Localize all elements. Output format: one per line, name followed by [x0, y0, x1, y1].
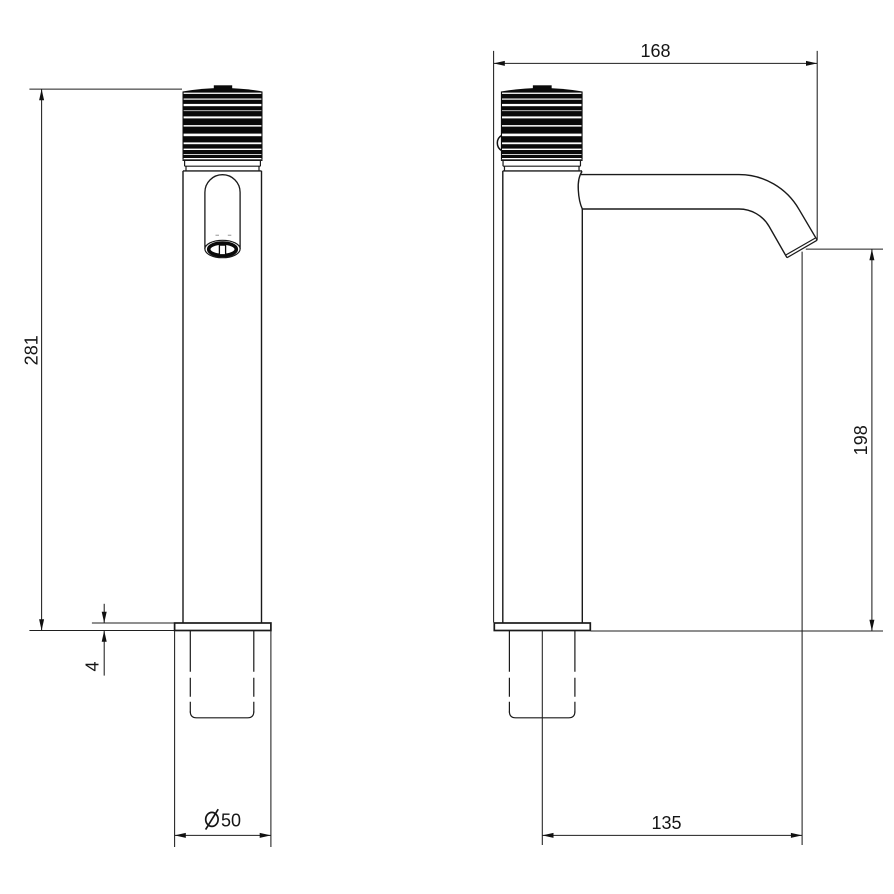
- svg-text:281: 281: [22, 335, 42, 365]
- svg-text:198: 198: [851, 425, 871, 455]
- svg-text:4: 4: [82, 661, 102, 671]
- svg-text:135: 135: [651, 813, 681, 833]
- svg-text:50: 50: [221, 811, 241, 831]
- svg-text:168: 168: [640, 41, 670, 61]
